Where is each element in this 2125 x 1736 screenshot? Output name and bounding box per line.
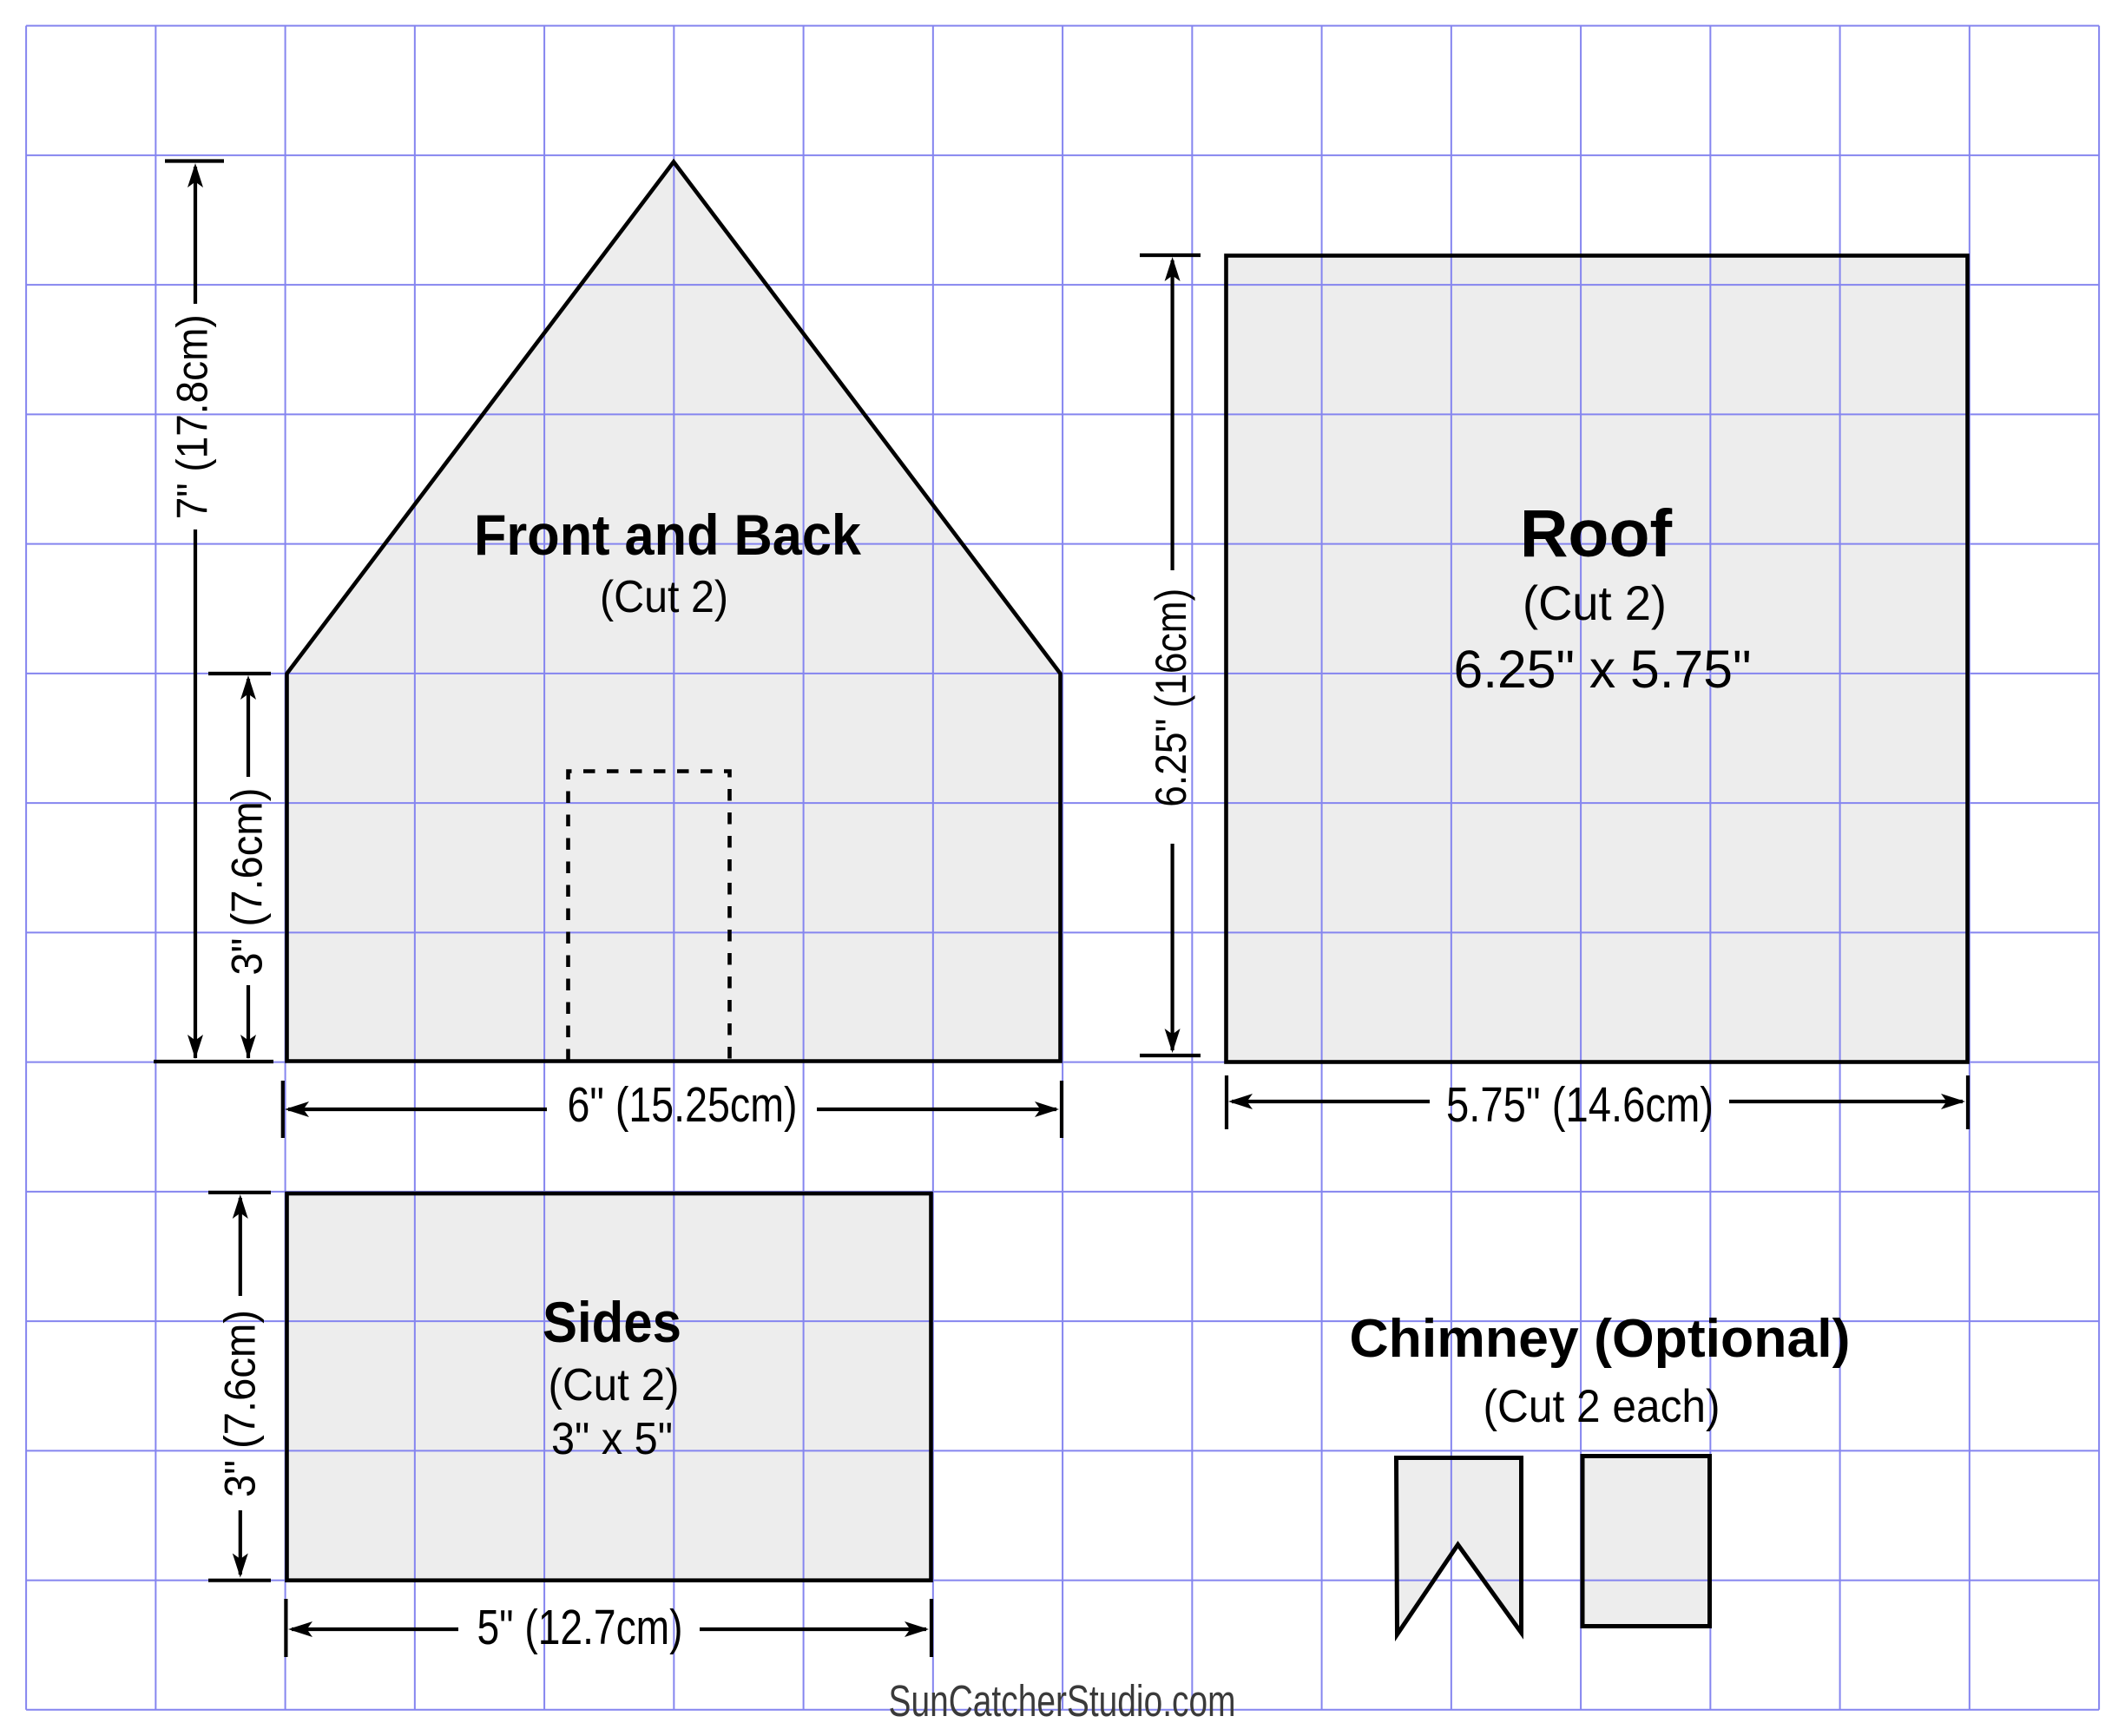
- svg-text:Sides: Sides: [543, 1290, 681, 1354]
- svg-text:6.25" x 5.75": 6.25" x 5.75": [1454, 640, 1752, 699]
- svg-text:Front and Back: Front and Back: [474, 503, 861, 567]
- svg-text:5.75" (14.6cm): 5.75" (14.6cm): [1446, 1077, 1714, 1133]
- svg-text:3" (7.6cm): 3" (7.6cm): [216, 1310, 265, 1497]
- svg-text:6" (15.25cm): 6" (15.25cm): [568, 1077, 798, 1133]
- svg-text:Roof: Roof: [1520, 496, 1673, 571]
- svg-text:7" (17.8cm): 7" (17.8cm): [168, 314, 216, 519]
- svg-text:(Cut 2 each): (Cut 2 each): [1484, 1381, 1720, 1432]
- svg-text:(Cut 2): (Cut 2): [600, 572, 728, 622]
- svg-text:5" (12.7cm): 5" (12.7cm): [477, 1600, 683, 1655]
- svg-text:Chimney (Optional): Chimney (Optional): [1350, 1309, 1851, 1369]
- svg-text:SunCatcherStudio.com: SunCatcherStudio.com: [889, 1676, 1236, 1726]
- svg-text:3" x 5": 3" x 5": [551, 1414, 673, 1464]
- svg-text:6.25" (16cm): 6.25" (16cm): [1147, 589, 1195, 807]
- svg-text:(Cut 2): (Cut 2): [549, 1360, 680, 1410]
- svg-text:(Cut 2): (Cut 2): [1523, 575, 1667, 630]
- svg-text:3" (7.6cm): 3" (7.6cm): [223, 788, 272, 976]
